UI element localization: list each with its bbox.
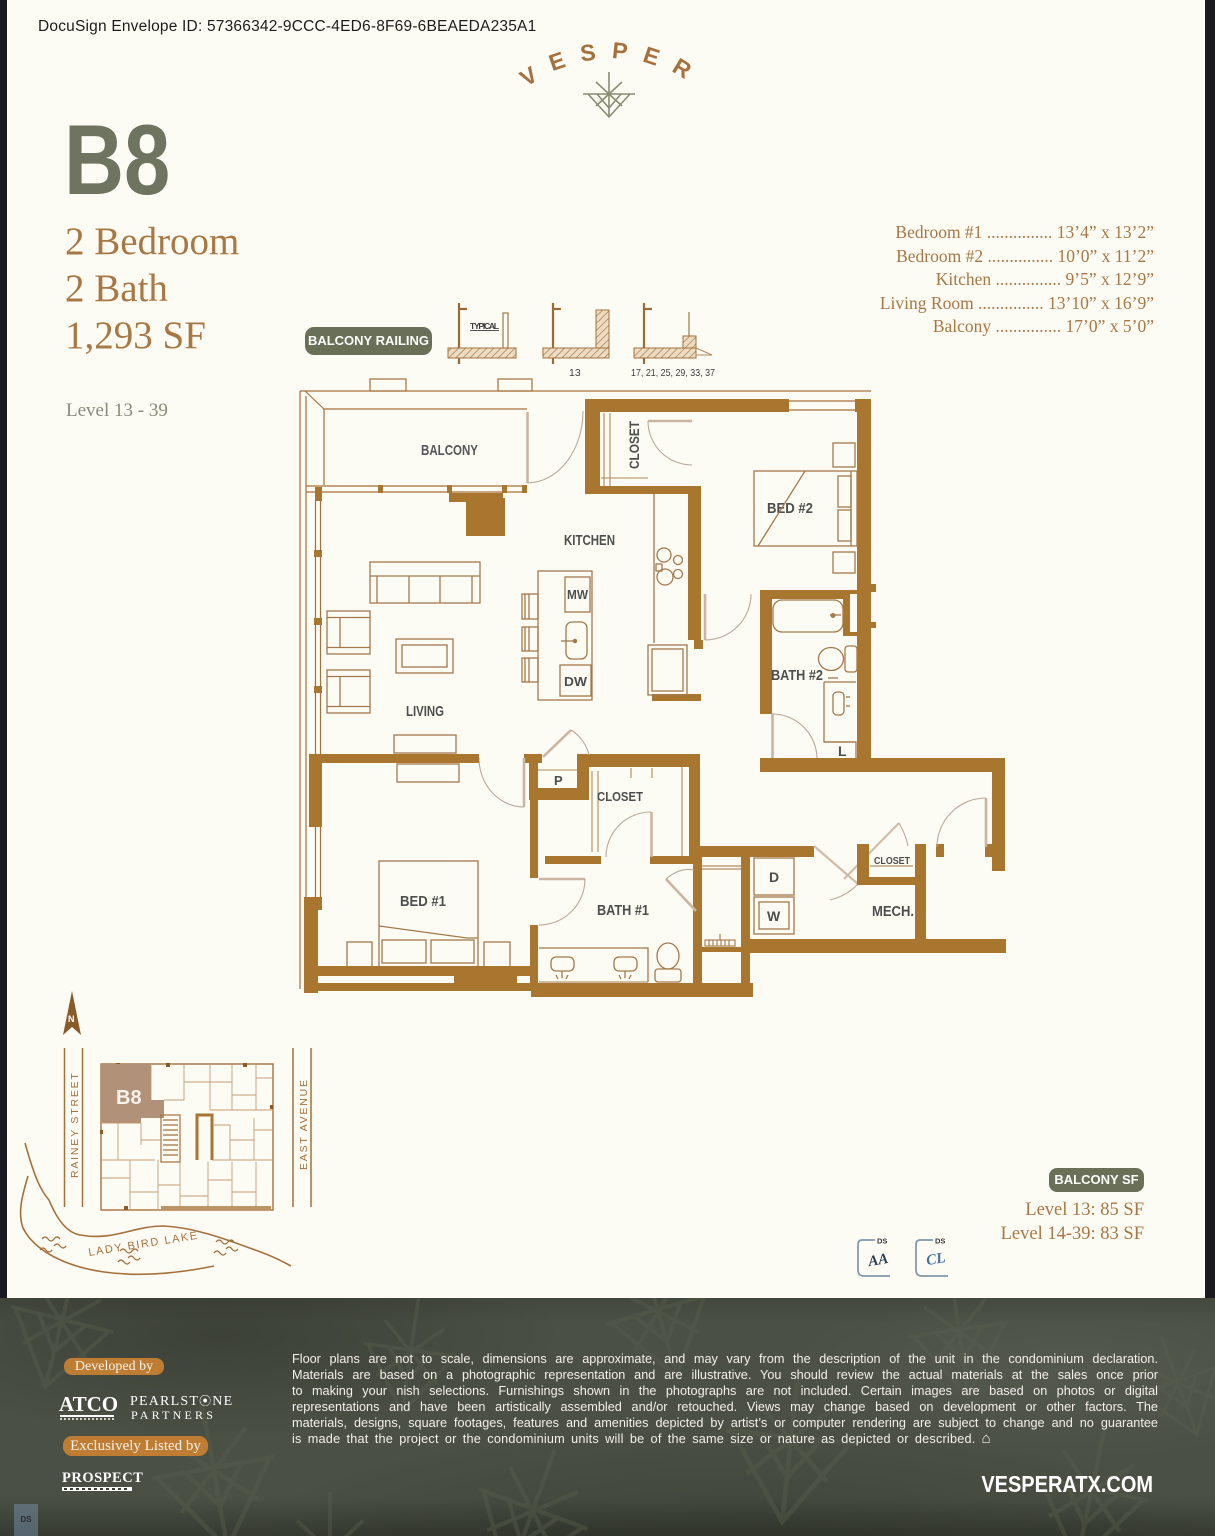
svg-text:BALCONY: BALCONY (421, 442, 478, 459)
svg-text:DW: DW (564, 674, 588, 689)
svg-text:RAINEY STREET: RAINEY STREET (69, 1071, 81, 1178)
svg-text:P: P (554, 773, 563, 788)
svg-text:DS: DS (877, 1237, 887, 1246)
svg-text:W: W (767, 908, 781, 924)
svg-text:TYPICAL: TYPICAL (470, 321, 499, 331)
svg-text:13: 13 (569, 367, 581, 379)
svg-text:MW: MW (567, 587, 589, 602)
svg-text:CLOSET: CLOSET (597, 789, 643, 804)
svg-text:LIVING: LIVING (406, 703, 444, 720)
svg-text:17, 21, 25, 29, 33, 37: 17, 21, 25, 29, 33, 37 (631, 367, 715, 379)
svg-text:BATH #1: BATH #1 (597, 902, 649, 919)
svg-text:CLOSET: CLOSET (627, 420, 642, 469)
svg-text:D: D (769, 869, 779, 885)
svg-text:BED #1: BED #1 (400, 893, 446, 910)
svg-text:VESPER: VESPER (515, 37, 709, 91)
svg-text:AA: AA (866, 1251, 889, 1270)
svg-text:BATH #2: BATH #2 (771, 667, 823, 684)
svg-text:BED #2: BED #2 (767, 500, 813, 517)
svg-text:MECH.: MECH. (872, 903, 914, 920)
svg-text:LADY BIRD LAKE: LADY BIRD LAKE (88, 1230, 200, 1259)
svg-text:EAST AVENUE: EAST AVENUE (298, 1078, 310, 1170)
svg-text:L: L (838, 743, 847, 759)
svg-text:DS: DS (935, 1237, 945, 1246)
svg-text:N: N (68, 1014, 75, 1024)
svg-text:B8: B8 (116, 1087, 142, 1109)
svg-text:CL: CL (925, 1250, 947, 1269)
svg-text:KITCHEN: KITCHEN (564, 532, 615, 549)
svg-text:CLOSET: CLOSET (874, 855, 910, 867)
